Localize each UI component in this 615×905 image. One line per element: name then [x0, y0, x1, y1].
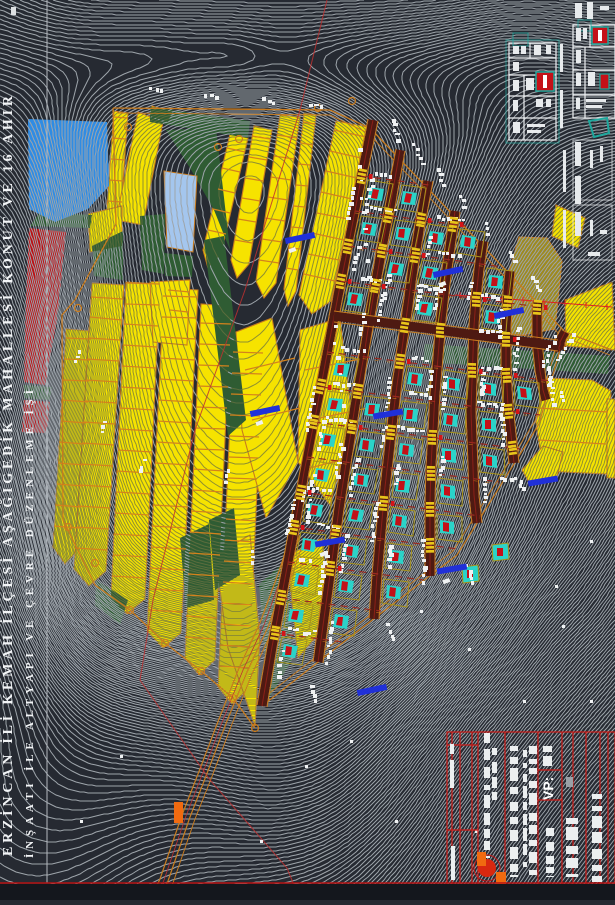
svg-text:VP:: VP: — [540, 777, 556, 800]
svg-text:İNŞAATI İLE ALTYAPI VE ÇEVRE D: İNŞAATI İLE ALTYAPI VE ÇEVRE DÜZENLEME İ… — [23, 390, 36, 858]
